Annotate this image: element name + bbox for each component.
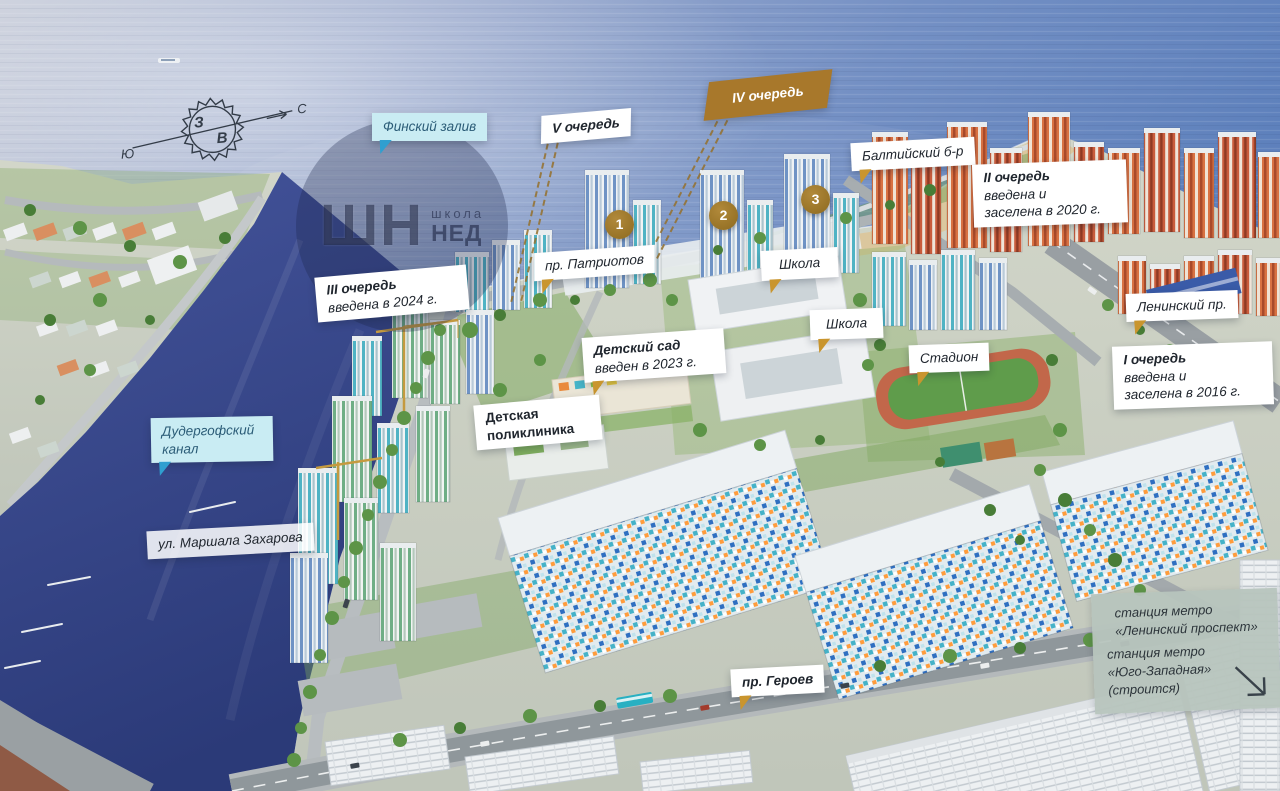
label-phase1: I очередь введена и заселена в 2016 г.: [1112, 341, 1274, 409]
watermark-word2: НЕД: [431, 221, 484, 246]
label-geroev-ave: пр. Героев: [730, 665, 825, 697]
label-school-2: Школа: [810, 308, 884, 340]
label-leninsky-ave: Ленинский пр.: [1126, 290, 1239, 321]
phase-marker-1: 1: [605, 210, 634, 239]
phase-marker-3: 3: [801, 185, 830, 214]
phase-marker-2: 2: [709, 201, 738, 230]
compass-north: С: [297, 101, 308, 117]
label-metro-stations: станция метро «Ленинский проспект» станц…: [1091, 588, 1280, 714]
label-stadium: Стадион: [909, 343, 990, 373]
compass-south: Ю: [120, 146, 134, 162]
compass-west: З: [194, 114, 205, 132]
compass-rose: З В Ю С: [115, 83, 321, 192]
direction-arrow-icon: [1229, 660, 1272, 703]
watermark-word1: школа: [431, 206, 484, 222]
boat: [158, 58, 180, 63]
label-school-1: Школа: [760, 247, 839, 281]
label-dudergofsky-canal: Дудергофский канал: [151, 416, 274, 463]
masterplan-stage: ШН школа НЕД З В Ю С Финский залив V оче…: [0, 0, 1280, 791]
watermark-initials: ШН: [320, 197, 424, 255]
label-gulf-of-finland: Финский залив: [372, 113, 487, 141]
compass-east: В: [216, 129, 228, 147]
label-phase2: II очередь введена и заселена в 2020 г.: [972, 159, 1128, 227]
